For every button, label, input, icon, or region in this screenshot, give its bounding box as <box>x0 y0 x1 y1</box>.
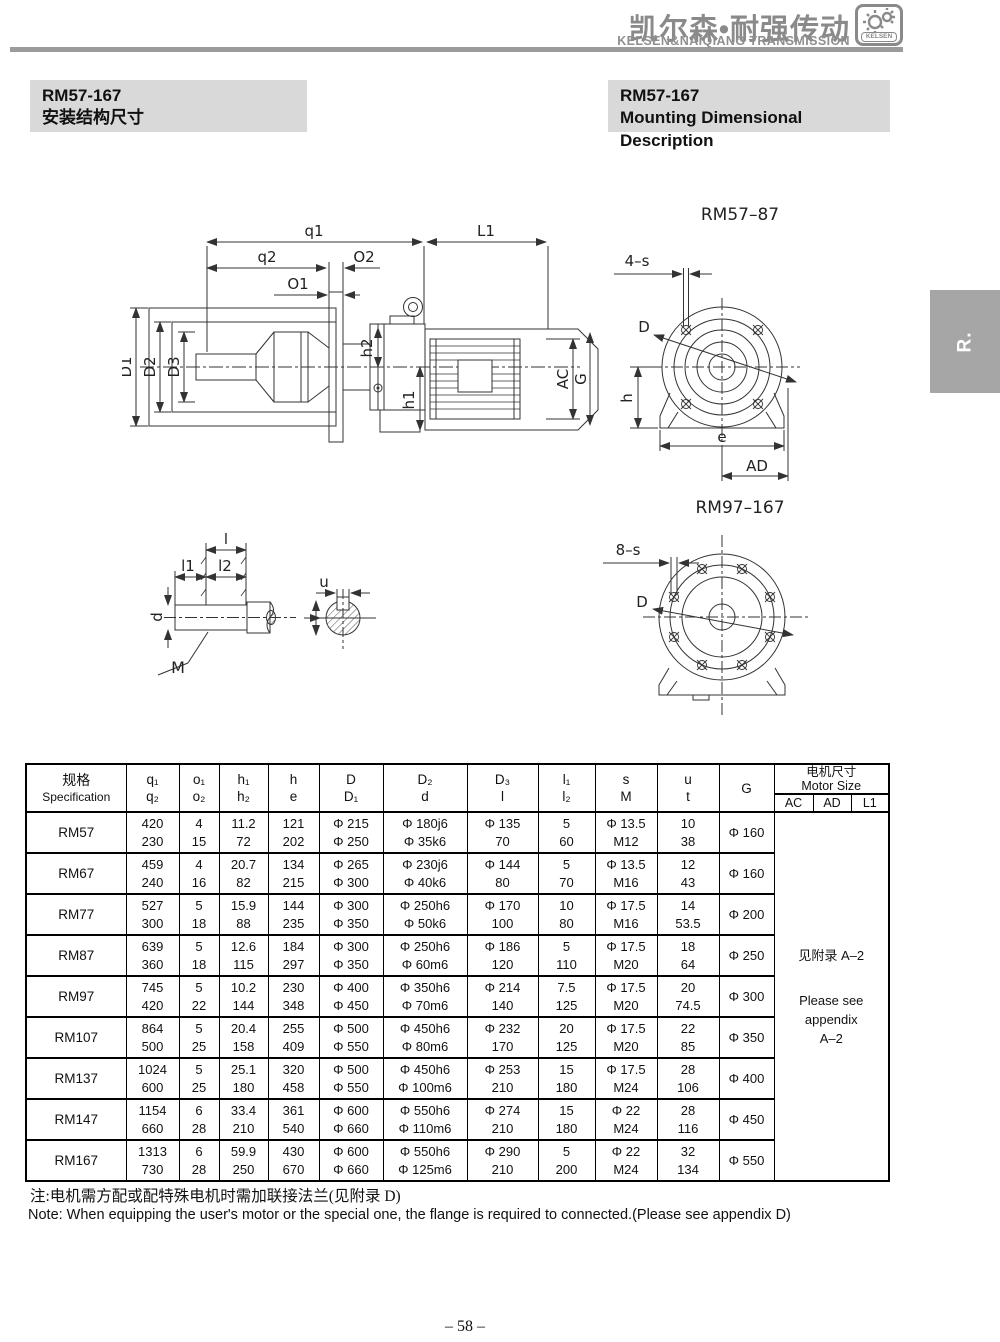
value-cell: 320458 <box>268 1058 319 1099</box>
value-cell: 459240 <box>126 853 179 894</box>
title-block-en: RM57-167 Mounting Dimensional Descriptio… <box>608 80 890 132</box>
value-cell: 560 <box>538 812 595 853</box>
value-cell: Φ 22M24 <box>595 1140 657 1181</box>
value-cell: Φ 250h6Φ 60m6 <box>383 935 467 976</box>
table-body: RM5742023041511.272121202Φ 215Φ 250Φ 180… <box>26 812 889 1181</box>
value-cell: 230348 <box>268 976 319 1017</box>
value-cell: Φ 13.5M12 <box>595 812 657 853</box>
value-cell: 33.4210 <box>219 1099 268 1140</box>
value-cell: Φ 253210 <box>467 1058 538 1099</box>
value-cell: 361540 <box>268 1099 319 1140</box>
value-cell: Φ 300Φ 350 <box>319 894 383 935</box>
col-header-motor-size: 电机尺寸 Motor Size <box>774 764 889 794</box>
footnote-cn: 注:电机需方配或配特殊电机时需加联接法兰(见附录 D) <box>30 1184 401 1206</box>
dim-label-D-small: D <box>638 318 650 336</box>
value-cell: 518 <box>179 894 219 935</box>
value-cell: 12.6115 <box>219 935 268 976</box>
col-header-pair: DD₁ <box>319 764 383 812</box>
value-cell: Φ 600Φ 660 <box>319 1140 383 1181</box>
value-cell: Φ 17.5M20 <box>595 935 657 976</box>
value-cell: Φ 265Φ 300 <box>319 853 383 894</box>
value-cell: Φ 13570 <box>467 812 538 853</box>
table-row: RM9774542052210.2144230348Φ 400Φ 450Φ 35… <box>26 976 889 1017</box>
table-row: RM137102460052525.1180320458Φ 500Φ 550Φ … <box>26 1058 889 1099</box>
value-cell: 15.988 <box>219 894 268 935</box>
value-cell: Φ 180j6Φ 35k6 <box>383 812 467 853</box>
brand-logo: KELSEN <box>855 4 903 46</box>
g-cell: Φ 200 <box>719 894 774 935</box>
dim-label-e: e <box>717 428 726 446</box>
value-cell: Φ 17.5M24 <box>595 1058 657 1099</box>
col-header-pair: D₂d <box>383 764 467 812</box>
value-cell: 11.272 <box>219 812 268 853</box>
value-cell: 7.5125 <box>538 976 595 1017</box>
dim-label-O1: O1 <box>287 275 308 293</box>
value-cell: 1024600 <box>126 1058 179 1099</box>
col-header-G: G <box>719 764 774 812</box>
dim-label-u: u <box>319 573 329 591</box>
col-header-pair: ut <box>657 764 719 812</box>
col-header-pair: he <box>268 764 319 812</box>
shaft-detail-drawing: l l1 l2 d M u <box>128 533 438 708</box>
col-header-motor-sub: AC <box>774 794 813 812</box>
value-cell: 184297 <box>268 935 319 976</box>
value-cell: 1243 <box>657 853 719 894</box>
value-cell: Φ 17.5M20 <box>595 976 657 1017</box>
dim-label-M: M <box>171 658 185 677</box>
dim-label-D2: D2 <box>141 356 159 377</box>
header-divider <box>10 47 903 52</box>
title-cn: 安装结构尺寸 <box>42 106 307 129</box>
g-cell: Φ 550 <box>719 1140 774 1181</box>
value-cell: 527300 <box>126 894 179 935</box>
col-header-motor-sub: L1 <box>851 794 889 812</box>
value-cell: 1154660 <box>126 1099 179 1140</box>
value-cell: 525 <box>179 1058 219 1099</box>
table-row: RM10786450052520.4158255409Φ 500Φ 550Φ 4… <box>26 1017 889 1058</box>
table-row: RM6745924041620.782134215Φ 265Φ 300Φ 230… <box>26 853 889 894</box>
value-cell: Φ 17.5M20 <box>595 1017 657 1058</box>
gearmotor-side-view-drawing: q1 L1 q2 O2 O1 D1 D2 D3 h2 h1 AC G <box>122 212 600 469</box>
dim-label-4s: 4–s <box>625 252 650 270</box>
value-cell: 32134 <box>657 1140 719 1181</box>
value-cell: 1864 <box>657 935 719 976</box>
value-cell: 522 <box>179 976 219 1017</box>
value-cell: Φ 550h6Φ 110m6 <box>383 1099 467 1140</box>
dim-label-l2: l2 <box>218 557 232 575</box>
section-tab-label: R. <box>954 331 976 352</box>
footnote-en: Note: When equipping the user's motor or… <box>28 1207 791 1223</box>
dimension-table: 规格 Specification q₁q₂o₁o₂h₁h₂heDD₁D₂dD₃l… <box>25 763 890 1182</box>
value-cell: 1453.5 <box>657 894 719 935</box>
value-cell: 5200 <box>538 1140 595 1181</box>
flange-view-rm97-167: 8–s D <box>595 523 905 733</box>
value-cell: 15180 <box>538 1058 595 1099</box>
g-cell: Φ 400 <box>719 1058 774 1099</box>
value-cell: Φ 290210 <box>467 1140 538 1181</box>
flange-small-title: RM57–87 <box>640 205 840 225</box>
dim-label-h: h <box>618 393 636 403</box>
value-cell: 570 <box>538 853 595 894</box>
motor-size-note-cell: 见附录 A–2Please seeappendixA–2 <box>774 812 889 1181</box>
value-cell: Φ 17.5M16 <box>595 894 657 935</box>
value-cell: Φ 13.5M16 <box>595 853 657 894</box>
value-cell: Φ 350h6Φ 70m6 <box>383 976 467 1017</box>
value-cell: Φ 230j6Φ 40k6 <box>383 853 467 894</box>
dim-label-D3: D3 <box>165 356 183 377</box>
value-cell: 1038 <box>657 812 719 853</box>
col-header-motor-sub: AD <box>813 794 851 812</box>
table-row: RM147115466062833.4210361540Φ 600Φ 660Φ … <box>26 1099 889 1140</box>
col-header-pair: l₁l₂ <box>538 764 595 812</box>
dim-label-l1: l1 <box>181 557 195 575</box>
table-header-row: 规格 Specification q₁q₂o₁o₂h₁h₂heDD₁D₂dD₃l… <box>26 764 889 794</box>
col-header-pair: q₁q₂ <box>126 764 179 812</box>
value-cell: 144235 <box>268 894 319 935</box>
g-cell: Φ 160 <box>719 853 774 894</box>
dim-label-h1: h1 <box>400 390 418 409</box>
value-cell: 134215 <box>268 853 319 894</box>
dim-label-8s: 8–s <box>616 541 641 559</box>
dim-label-D-large: D <box>636 593 648 611</box>
logo-wordmark: KELSEN <box>861 32 897 42</box>
value-cell: Φ 600Φ 660 <box>319 1099 383 1140</box>
value-cell: Φ 250h6Φ 50k6 <box>383 894 467 935</box>
spec-cell: RM67 <box>26 853 126 894</box>
value-cell: 628 <box>179 1140 219 1181</box>
col-header-specification: 规格 Specification <box>26 764 126 812</box>
section-tab-r[interactable]: R. <box>930 290 1000 393</box>
value-cell: Φ 274210 <box>467 1099 538 1140</box>
value-cell: 25.1180 <box>219 1058 268 1099</box>
g-cell: Φ 450 <box>719 1099 774 1140</box>
table-row: RM5742023041511.272121202Φ 215Φ 250Φ 180… <box>26 812 889 853</box>
col-header-pair: h₁h₂ <box>219 764 268 812</box>
brand-name-en: KELSEN&NAIQIANG TRANSMISSION <box>420 34 850 48</box>
spec-cell: RM97 <box>26 976 126 1017</box>
value-cell: 518 <box>179 935 219 976</box>
table-row: RM7752730051815.988144235Φ 300Φ 350Φ 250… <box>26 894 889 935</box>
value-cell: Φ 400Φ 450 <box>319 976 383 1017</box>
value-cell: 59.9250 <box>219 1140 268 1181</box>
value-cell: Φ 14480 <box>467 853 538 894</box>
value-cell: Φ 550h6Φ 125m6 <box>383 1140 467 1181</box>
spec-cell: RM87 <box>26 935 126 976</box>
title-en: Mounting Dimensional Description <box>620 106 890 152</box>
value-cell: 639360 <box>126 935 179 976</box>
value-cell: 28116 <box>657 1099 719 1140</box>
table-row: RM8763936051812.6115184297Φ 300Φ 350Φ 25… <box>26 935 889 976</box>
value-cell: 2285 <box>657 1017 719 1058</box>
value-cell: Φ 300Φ 350 <box>319 935 383 976</box>
flange-view-rm57-87: 4–s D h e AD <box>600 238 900 495</box>
gear-logo-icon <box>858 8 900 34</box>
catalog-page: 凯尔森•耐强传动 KELSEN&NAIQIANG TRANSMISSION KE… <box>0 0 1000 1342</box>
value-cell: 20.4158 <box>219 1017 268 1058</box>
col-header-pair: o₁o₂ <box>179 764 219 812</box>
value-cell: 20125 <box>538 1017 595 1058</box>
model-range: RM57-167 <box>42 85 307 106</box>
dim-label-l: l <box>224 533 228 548</box>
value-cell: Φ 214140 <box>467 976 538 1017</box>
g-cell: Φ 160 <box>719 812 774 853</box>
value-cell: 864500 <box>126 1017 179 1058</box>
spec-cell: RM147 <box>26 1099 126 1140</box>
dim-label-O2: O2 <box>353 248 374 266</box>
value-cell: Φ 215Φ 250 <box>319 812 383 853</box>
value-cell: 28106 <box>657 1058 719 1099</box>
value-cell: 420230 <box>126 812 179 853</box>
dim-label-AC: AC <box>554 369 572 389</box>
value-cell: 1313730 <box>126 1140 179 1181</box>
value-cell: Φ 450h6Φ 80m6 <box>383 1017 467 1058</box>
g-cell: Φ 350 <box>719 1017 774 1058</box>
value-cell: 20.782 <box>219 853 268 894</box>
dim-label-h2: h2 <box>358 338 376 357</box>
value-cell: 121202 <box>268 812 319 853</box>
title-block-cn: RM57-167 安装结构尺寸 <box>30 80 307 132</box>
spec-cell: RM167 <box>26 1140 126 1181</box>
flange-large-title: RM97–167 <box>640 498 840 518</box>
table-row: RM167131373062859.9250430670Φ 600Φ 660Φ … <box>26 1140 889 1181</box>
dim-label-L1: L1 <box>477 222 495 240</box>
dim-label-AD: AD <box>746 457 768 475</box>
value-cell: Φ 232170 <box>467 1017 538 1058</box>
value-cell: 15180 <box>538 1099 595 1140</box>
spec-cell: RM57 <box>26 812 126 853</box>
spec-cell: RM77 <box>26 894 126 935</box>
dim-label-q2: q2 <box>257 248 276 266</box>
dim-label-q1: q1 <box>304 222 323 240</box>
value-cell: 10.2144 <box>219 976 268 1017</box>
page-number: – 58 – <box>0 1318 930 1336</box>
value-cell: 5110 <box>538 935 595 976</box>
value-cell: 430670 <box>268 1140 319 1181</box>
g-cell: Φ 250 <box>719 935 774 976</box>
value-cell: Φ 170100 <box>467 894 538 935</box>
value-cell: 628 <box>179 1099 219 1140</box>
value-cell: 415 <box>179 812 219 853</box>
value-cell: Φ 500Φ 550 <box>319 1017 383 1058</box>
value-cell: 416 <box>179 853 219 894</box>
value-cell: 255409 <box>268 1017 319 1058</box>
model-range-en: RM57-167 <box>620 85 890 106</box>
spec-cell: RM137 <box>26 1058 126 1099</box>
value-cell: 525 <box>179 1017 219 1058</box>
g-cell: Φ 300 <box>719 976 774 1017</box>
value-cell: 2074.5 <box>657 976 719 1017</box>
value-cell: 1080 <box>538 894 595 935</box>
dim-label-D1: D1 <box>122 356 135 377</box>
value-cell: Φ 186120 <box>467 935 538 976</box>
spec-cell: RM107 <box>26 1017 126 1058</box>
value-cell: Φ 500Φ 550 <box>319 1058 383 1099</box>
dim-label-d: d <box>148 612 166 622</box>
col-header-pair: sM <box>595 764 657 812</box>
dim-label-G: G <box>572 373 590 385</box>
value-cell: 745420 <box>126 976 179 1017</box>
value-cell: Φ 22M24 <box>595 1099 657 1140</box>
col-header-pair: D₃l <box>467 764 538 812</box>
value-cell: Φ 450h6Φ 100m6 <box>383 1058 467 1099</box>
